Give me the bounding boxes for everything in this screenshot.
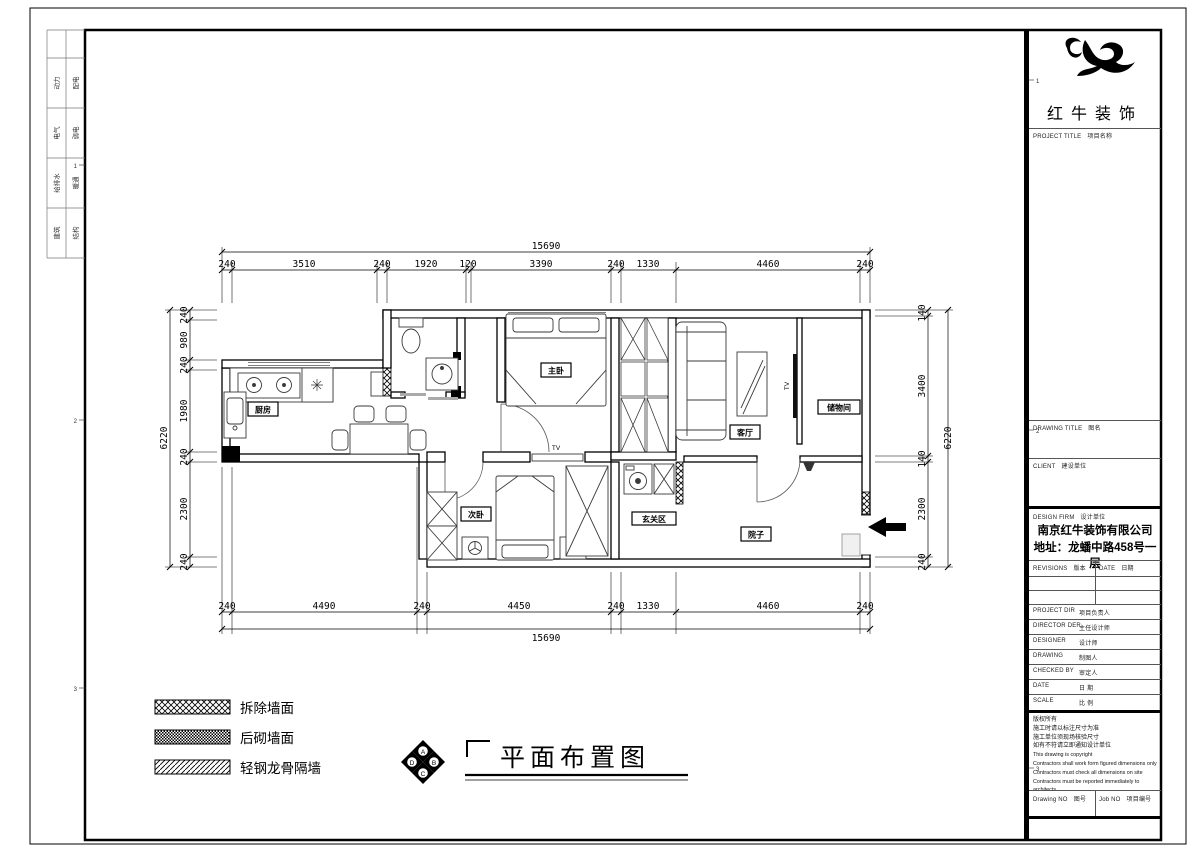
compass-icon: A B C D	[401, 740, 445, 784]
toilet-tank	[399, 318, 423, 327]
svg-text:15690: 15690	[532, 633, 561, 644]
svg-text:C: C	[421, 771, 426, 778]
personnel-row: DIRECTOR DER	[1033, 623, 1081, 629]
tv-label: TV	[552, 445, 561, 452]
svg-text:140: 140	[917, 450, 928, 467]
room-label-bedroom2: 次卧	[468, 510, 484, 520]
svg-text:D: D	[410, 760, 415, 767]
room-label-storage: 储物间	[826, 403, 851, 413]
svg-text:240: 240	[373, 259, 390, 270]
svg-text:240: 240	[607, 601, 624, 612]
room-label-living: 客厅	[736, 428, 753, 438]
personnel-row: DRAWING	[1033, 653, 1063, 659]
room-label-yard: 院子	[748, 530, 764, 540]
drawing-title-label: DRAWING TITLE图名	[1033, 423, 1101, 432]
discipline-label: 动力	[52, 77, 61, 90]
legend-label: 后砌墙面	[240, 731, 294, 746]
brand-logo-icon	[1049, 36, 1141, 94]
svg-text:1330: 1330	[637, 601, 660, 612]
svg-text:1920: 1920	[415, 259, 438, 270]
svg-text:4450: 4450	[508, 601, 531, 612]
living-room-furniture	[676, 322, 797, 440]
room-label-foyer: 玄关区	[642, 514, 666, 524]
personnel-row: PROJECT DIR	[1033, 608, 1075, 614]
stove	[238, 373, 300, 398]
discipline-label: 结构	[71, 226, 80, 240]
design-firm-name: 南京红牛装饰有限公司	[1029, 522, 1161, 538]
tv-label: TV	[784, 381, 791, 390]
sheet-border	[30, 8, 1186, 844]
svg-text:980: 980	[179, 331, 190, 348]
project-title-label: PROJECT TITLE项目名称	[1033, 131, 1112, 140]
tv-panel	[793, 354, 797, 418]
svg-text:4460: 4460	[757, 259, 780, 270]
svg-text:240: 240	[179, 356, 190, 373]
svg-text:120: 120	[459, 259, 476, 270]
room-label-kitchen: 厨房	[255, 405, 271, 415]
tv-cabinet	[532, 454, 583, 461]
entry-arrow-icon	[868, 517, 906, 537]
dimension-lines	[165, 247, 953, 634]
entry-door	[861, 515, 906, 555]
svg-text:2: 2	[74, 419, 78, 425]
svg-text:4460: 4460	[757, 601, 780, 612]
svg-text:240: 240	[607, 259, 624, 270]
discipline-label: 电气	[52, 126, 61, 140]
svg-text:6220: 6220	[159, 426, 170, 449]
personnel-row: DATE	[1033, 683, 1049, 689]
svg-text:240: 240	[218, 601, 235, 612]
legend: 拆除墙面 后砌墙面 轻钢龙骨隔墙	[155, 700, 321, 776]
title-block: 红牛装饰 PROJECT TITLE项目名称 DRAWING TITLE图名 C…	[1029, 30, 1161, 816]
grid-refs: 1 2 3 1 2 3	[74, 79, 1040, 773]
drawing-no-label: Drawing NO图号	[1033, 794, 1086, 803]
legend-swatch-steel-partition	[155, 760, 230, 774]
svg-text:15690: 15690	[532, 241, 561, 252]
svg-text:240: 240	[413, 601, 430, 612]
svg-text:3510: 3510	[293, 259, 316, 270]
svg-text:1: 1	[74, 164, 78, 170]
legend-label: 轻钢龙骨隔墙	[240, 761, 321, 776]
bathroom-fixtures	[399, 318, 458, 390]
discipline-label: 给排水	[52, 173, 61, 193]
date-col-label: DATE日期	[1099, 563, 1134, 572]
svg-text:240: 240	[856, 259, 873, 270]
svg-text:240: 240	[917, 553, 928, 570]
master-bedroom-furniture	[506, 314, 606, 461]
svg-text:1330: 1330	[637, 259, 660, 270]
svg-text:2300: 2300	[179, 497, 190, 520]
svg-text:240: 240	[218, 259, 235, 270]
personnel-row: CHECKED BY	[1033, 668, 1074, 674]
sofa	[676, 322, 726, 440]
svg-text:140: 140	[917, 304, 928, 321]
discipline-label: 弱电	[71, 126, 80, 140]
floor-plan-canvas: 动力 配电 电气 弱电 给排水 暖通 建筑 结构 1 2 3 1 2 3	[0, 0, 1200, 852]
svg-text:240: 240	[179, 553, 190, 570]
personnel-row: SCALE	[1033, 698, 1054, 704]
drawing-sheet: 动力 配电 电气 弱电 给排水 暖通 建筑 结构 1 2 3 1 2 3	[0, 0, 1200, 852]
sheet-title: 平面布置图	[465, 741, 688, 780]
svg-text:3390: 3390	[530, 259, 553, 270]
svg-text:6220: 6220	[943, 426, 954, 449]
discipline-strip: 动力 配电 电气 弱电 给排水 暖通 建筑 结构	[47, 30, 85, 258]
job-no-label: Job NO项目编号	[1099, 794, 1151, 803]
legend-label: 拆除墙面	[240, 701, 294, 716]
courtyard-fixtures	[803, 462, 860, 556]
revisions-label: REVISIONS版本	[1033, 563, 1086, 572]
svg-text:4490: 4490	[313, 601, 336, 612]
entry-strip-fixtures	[624, 464, 674, 494]
closet-column	[621, 318, 668, 452]
room-label-master: 主卧	[548, 366, 564, 376]
discipline-label: 建筑	[52, 226, 61, 240]
shelf	[371, 372, 383, 396]
svg-text:240: 240	[856, 601, 873, 612]
svg-text:B: B	[432, 760, 436, 767]
svg-text:3: 3	[74, 687, 78, 693]
design-firm-label: DESIGN FIRM设计单位	[1033, 512, 1105, 521]
legend-swatch-demolish	[155, 700, 230, 714]
brand-name: 红牛装饰	[1029, 100, 1161, 124]
personnel-row: DESIGNER	[1033, 638, 1066, 644]
svg-text:1980: 1980	[179, 399, 190, 422]
client-label: CLIENT建设单位	[1033, 461, 1086, 470]
discipline-label: 配电	[71, 76, 80, 90]
svg-text:3400: 3400	[917, 374, 928, 397]
svg-text:A: A	[421, 749, 426, 756]
door-closer-icon	[803, 462, 815, 471]
svg-text:2300: 2300	[917, 497, 928, 520]
sheet-title-text: 平面布置图	[500, 744, 650, 772]
svg-text:240: 240	[179, 448, 190, 465]
legend-swatch-new-wall	[155, 730, 230, 744]
dimension-text: 15690 240 3510 240 1920 120 3390 240 133…	[159, 241, 954, 644]
second-bedroom-furniture	[427, 466, 608, 560]
toilet	[402, 329, 420, 353]
dining-set	[332, 406, 426, 454]
discipline-label: 暖通	[71, 176, 80, 190]
copyright-notes: 版权所有 施工时请以标注尺寸为准 施工单位须现场核验尺寸 如有不符请立即通知设计…	[1033, 716, 1159, 795]
svg-text:240: 240	[179, 306, 190, 323]
